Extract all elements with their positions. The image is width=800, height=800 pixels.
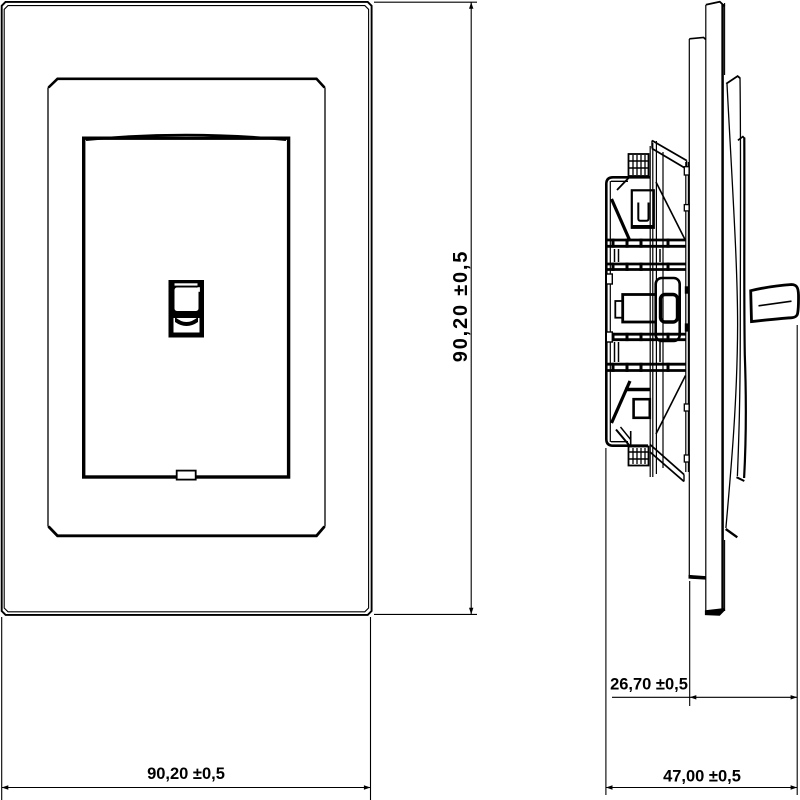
svg-text:90,20 ±0,5: 90,20 ±0,5 bbox=[450, 250, 472, 362]
svg-text:90,20 ±0,5: 90,20 ±0,5 bbox=[147, 765, 225, 783]
svg-text:47,00 ±0,5: 47,00 ±0,5 bbox=[663, 768, 741, 786]
svg-text:26,70 ±0,5: 26,70 ±0,5 bbox=[610, 676, 688, 694]
